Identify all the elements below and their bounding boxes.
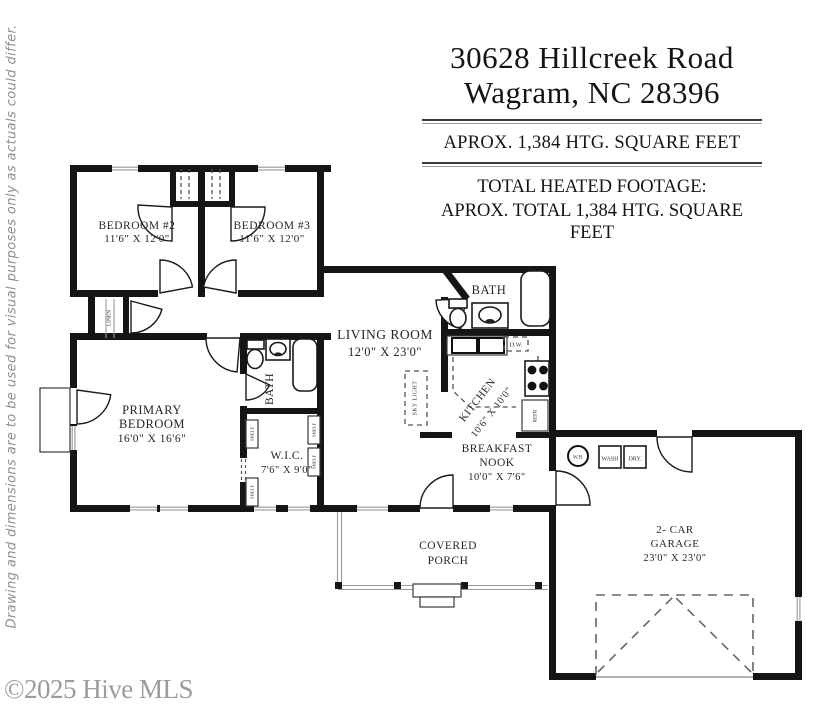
dryer-label: DRY.: [628, 457, 642, 463]
floor-plan-page: Drawing and dimensions are to be used fo…: [0, 0, 837, 721]
room-label-garage-1: 2- CAR: [656, 524, 694, 536]
refrigerator-label: REFR: [534, 409, 539, 422]
shelf-label: SHELF: [250, 427, 255, 441]
room-dims-primary: 16'0" X 16'6": [118, 433, 187, 445]
main-bath-fixtures: [449, 271, 550, 328]
window: [286, 505, 312, 512]
room-label-nook-1: BREAKFAST: [462, 443, 533, 455]
garage-door-outline: [596, 595, 753, 677]
door-swing: [657, 437, 692, 472]
room-dims-wic: 7'6" X 9'0": [261, 465, 313, 476]
bathtub-symbol: [521, 271, 550, 326]
window: [488, 505, 515, 512]
sink-symbol: [472, 303, 508, 328]
room-dims-bedroom3: 11'6" X 12'0": [239, 233, 304, 245]
toilet-symbol: [449, 299, 467, 328]
room-label-bedroom2: BEDROOM #2: [99, 220, 176, 232]
door-swing: [77, 390, 111, 424]
door-swing: [131, 301, 162, 333]
room-dims-bedroom2: 11'6" X 12'0": [104, 233, 169, 245]
window: [110, 165, 140, 172]
shelf-label: SHELF: [312, 423, 317, 437]
linen-closet: LINEN: [106, 299, 114, 338]
window: [128, 505, 190, 512]
floor-plan-drawing: LINEN: [0, 0, 837, 721]
room-label-primary-2: BEDROOM: [119, 417, 185, 431]
room-label-primary-bath: BATH: [264, 373, 276, 405]
room-dims-garage: 23'0" X 23'0": [643, 553, 706, 564]
window: [256, 165, 287, 172]
copyright-text: ©2025 Hive MLS: [4, 674, 193, 705]
linen-label: LINEN: [107, 310, 113, 327]
room-label-living-room: LIVING ROOM: [337, 327, 433, 342]
door-swing: [160, 260, 193, 293]
window: [355, 505, 390, 512]
room-label-porch-2: PORCH: [428, 555, 469, 567]
stove-symbol: [525, 361, 549, 396]
room-label-primary-1: PRIMARY: [122, 403, 182, 417]
room-dims-nook: 10'0" X 7'6": [468, 472, 525, 483]
stoop: [40, 388, 70, 452]
door-swing: [204, 260, 237, 293]
double-sink-symbol: [452, 338, 504, 353]
water-heater-label: W.H.: [573, 456, 583, 461]
room-label-nook-2: NOOK: [479, 457, 514, 469]
door-swing: [206, 338, 240, 372]
sink-symbol: [266, 339, 290, 360]
door-swing: [556, 471, 590, 505]
washer-label: WASH: [601, 457, 619, 463]
room-label-porch-1: COVERED: [419, 540, 477, 552]
bathtub-symbol: [293, 339, 317, 391]
window: [795, 595, 802, 623]
room-dims-living-room: 12'0" X 23'0": [348, 345, 422, 359]
window: [70, 424, 77, 452]
dishwasher-label: D.W.: [510, 342, 523, 349]
door-swing: [420, 475, 453, 508]
porch-steps: [413, 584, 461, 607]
room-label-garage-2: GARAGE: [651, 538, 700, 550]
shelf-label: SHELF: [250, 485, 255, 499]
skylight: SKY LIGHT: [405, 371, 427, 425]
toilet-symbol: [247, 340, 264, 369]
wic-door-opening: [242, 459, 246, 481]
room-label-main-bath: BATH: [472, 283, 507, 297]
skylight-label: SKY LIGHT: [413, 381, 419, 416]
room-label-wic: W.I.C.: [271, 450, 304, 462]
room-label-bedroom3: BEDROOM #3: [234, 220, 311, 232]
